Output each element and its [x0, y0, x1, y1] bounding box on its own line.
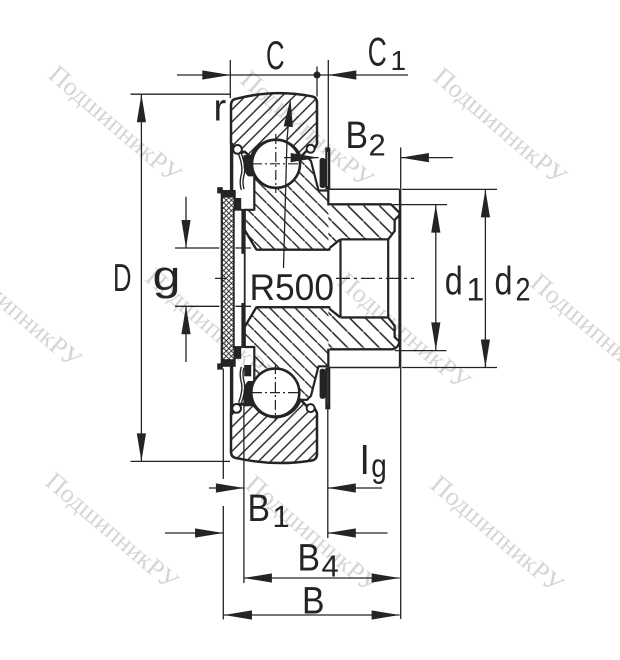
svg-text:d: d — [445, 260, 463, 304]
svg-text:D: D — [113, 257, 132, 300]
svg-text:R500: R500 — [250, 267, 335, 308]
svg-text:4: 4 — [322, 549, 339, 584]
svg-text:l: l — [360, 439, 369, 483]
svg-text:B: B — [298, 538, 321, 580]
svg-text:g: g — [153, 252, 181, 299]
svg-text:g: g — [371, 447, 387, 484]
svg-text:2: 2 — [516, 272, 531, 308]
svg-text:1: 1 — [467, 272, 485, 308]
svg-text:B: B — [302, 581, 325, 623]
svg-text:d: d — [495, 260, 513, 304]
svg-text:C: C — [368, 31, 387, 75]
svg-text:2: 2 — [369, 128, 386, 163]
svg-text:1: 1 — [273, 499, 290, 534]
svg-text:B: B — [248, 488, 271, 530]
svg-text:1: 1 — [391, 45, 407, 76]
svg-text:B: B — [346, 115, 369, 157]
svg-text:C: C — [266, 34, 285, 78]
svg-text:r: r — [214, 88, 227, 130]
